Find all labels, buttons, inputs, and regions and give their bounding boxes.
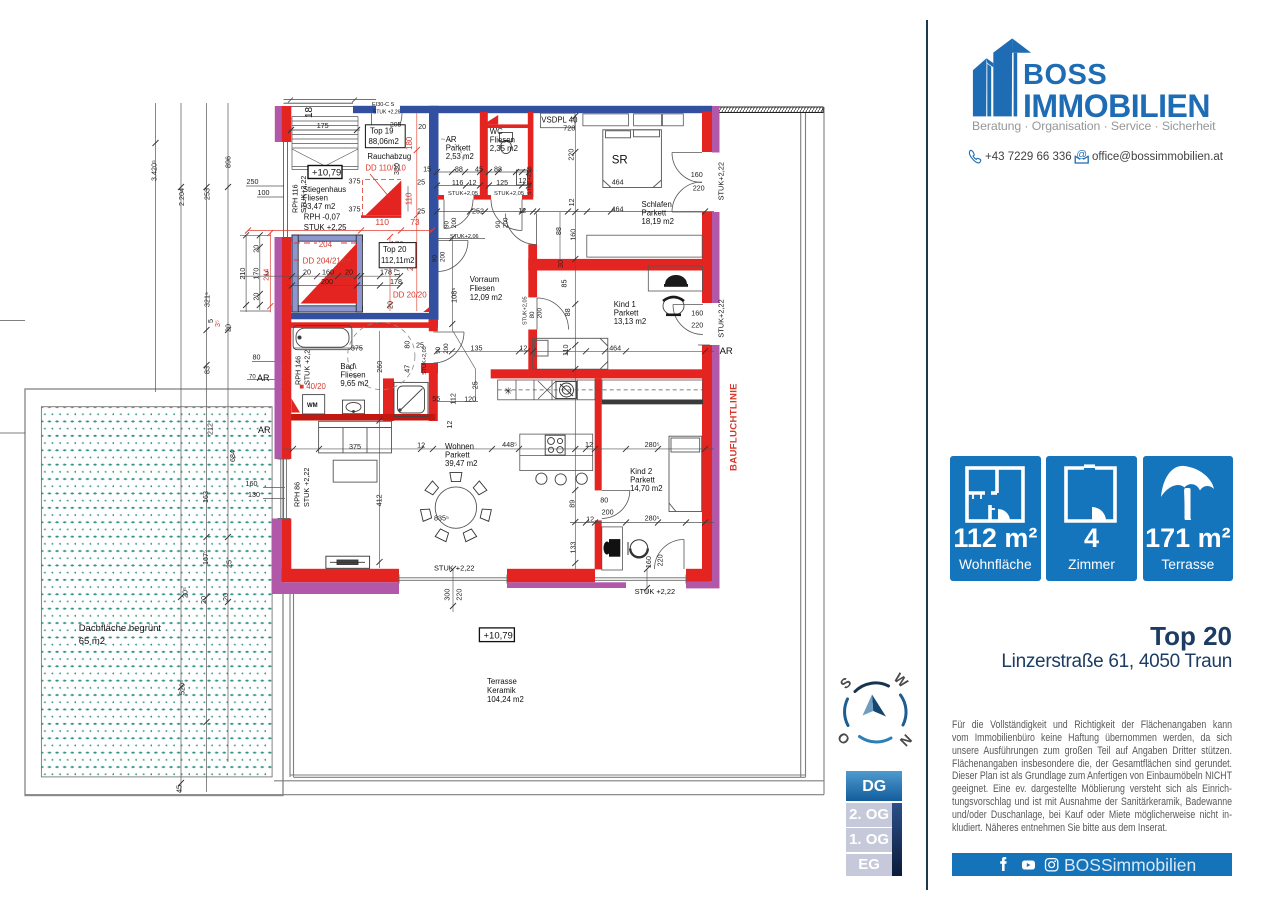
svg-text:3⁵: 3⁵ xyxy=(213,320,222,327)
svg-text:45: 45 xyxy=(475,165,483,174)
svg-text:2,35 m2: 2,35 m2 xyxy=(490,144,518,153)
svg-text:12: 12 xyxy=(567,198,576,206)
svg-text:12: 12 xyxy=(445,421,454,429)
svg-text:RPH -0,07: RPH -0,07 xyxy=(304,213,340,222)
svg-text:73: 73 xyxy=(410,217,420,227)
svg-text:+10,79: +10,79 xyxy=(312,168,341,179)
svg-text:80: 80 xyxy=(253,353,261,362)
svg-text:835⁵: 835⁵ xyxy=(434,514,449,523)
svg-text:55: 55 xyxy=(432,394,440,403)
svg-text:STUK+2,22: STUK+2,22 xyxy=(717,299,726,337)
svg-text:160: 160 xyxy=(644,556,653,568)
svg-text:20: 20 xyxy=(252,245,261,253)
svg-text:200: 200 xyxy=(602,508,614,517)
svg-text:205: 205 xyxy=(390,122,402,129)
svg-text:464: 464 xyxy=(609,344,621,353)
svg-text:S: S xyxy=(837,674,855,692)
svg-text:Vorraum: Vorraum xyxy=(470,275,499,284)
svg-text:100: 100 xyxy=(258,188,270,197)
svg-text:167⁵: 167⁵ xyxy=(201,550,210,565)
svg-text:9,65 m2: 9,65 m2 xyxy=(340,379,368,388)
svg-text:330: 330 xyxy=(392,163,401,175)
svg-text:25: 25 xyxy=(417,206,425,215)
svg-text:WM: WM xyxy=(307,403,318,409)
svg-text:252: 252 xyxy=(472,207,484,216)
svg-text:163: 163 xyxy=(201,491,210,503)
svg-text:104,24 m2: 104,24 m2 xyxy=(487,695,524,704)
svg-text:BAUFLUCHTLINIE: BAUFLUCHTLINIE xyxy=(729,383,740,471)
svg-text:88,06m2: 88,06m2 xyxy=(369,137,399,146)
svg-text:120: 120 xyxy=(464,395,476,404)
svg-text:464: 464 xyxy=(612,205,624,214)
svg-text:85: 85 xyxy=(560,280,569,288)
svg-text:110: 110 xyxy=(375,217,389,227)
svg-text:12: 12 xyxy=(417,441,425,450)
svg-text:65 m2: 65 m2 xyxy=(79,636,105,647)
svg-text:30: 30 xyxy=(556,260,565,268)
svg-text:260: 260 xyxy=(375,361,384,373)
svg-text:2.204: 2.204 xyxy=(177,188,186,206)
svg-text:STUK +2,2: STUK +2,2 xyxy=(303,350,312,385)
svg-text:375: 375 xyxy=(349,204,361,213)
svg-text:200: 200 xyxy=(503,217,510,228)
svg-text:STUK+2,05: STUK+2,05 xyxy=(494,191,524,197)
svg-text:13,13 m2: 13,13 m2 xyxy=(614,317,647,326)
svg-text:Terrasse: Terrasse xyxy=(487,677,517,686)
svg-text:AR: AR xyxy=(257,373,270,383)
svg-text:STUK +2,26: STUK +2,26 xyxy=(373,110,401,116)
svg-text:STUK+2,05: STUK+2,05 xyxy=(448,191,478,197)
svg-text:STUK+2,22: STUK+2,22 xyxy=(717,162,726,200)
svg-text:✳: ✳ xyxy=(504,387,512,398)
svg-text:12: 12 xyxy=(518,206,526,215)
svg-text:280⁵: 280⁵ xyxy=(645,514,660,523)
svg-text:W: W xyxy=(891,670,912,691)
svg-text:20: 20 xyxy=(252,293,261,301)
svg-text:204: 204 xyxy=(319,240,333,249)
svg-text:STUK+2,05: STUK+2,05 xyxy=(422,346,428,375)
svg-text:90: 90 xyxy=(495,221,502,228)
svg-text:375: 375 xyxy=(349,442,361,451)
svg-text:12: 12 xyxy=(586,515,594,524)
svg-text:464: 464 xyxy=(612,178,624,187)
svg-text:15: 15 xyxy=(423,165,431,174)
svg-text:@: @ xyxy=(1076,149,1087,161)
svg-text:Fliesen: Fliesen xyxy=(470,284,495,293)
svg-text:375: 375 xyxy=(349,176,361,185)
svg-text:Keramik: Keramik xyxy=(487,686,516,695)
svg-text:STUK +2,22: STUK +2,22 xyxy=(302,468,311,507)
svg-text:280⁵: 280⁵ xyxy=(645,440,660,449)
svg-text:20: 20 xyxy=(386,301,395,309)
svg-text:DD 20/20: DD 20/20 xyxy=(393,291,427,300)
svg-text:88: 88 xyxy=(455,165,463,174)
svg-text:200: 200 xyxy=(440,251,447,262)
svg-text:+10,79: +10,79 xyxy=(484,630,513,641)
svg-text:112,11m2: 112,11m2 xyxy=(381,256,415,265)
svg-text:178: 178 xyxy=(380,268,392,277)
svg-text:200: 200 xyxy=(451,217,458,228)
svg-text:3.420⁵: 3.420⁵ xyxy=(150,160,159,181)
svg-text:Rauchabzug: Rauchabzug xyxy=(367,152,411,161)
svg-text:Dachfläche begrünt: Dachfläche begrünt xyxy=(79,623,162,634)
svg-text:90: 90 xyxy=(435,346,442,353)
svg-text:175: 175 xyxy=(317,121,329,130)
svg-text:20: 20 xyxy=(224,324,233,332)
svg-text:220: 220 xyxy=(656,554,665,566)
svg-text:STUK+2,22: STUK+2,22 xyxy=(299,176,308,213)
svg-text:18: 18 xyxy=(304,106,315,118)
svg-text:220: 220 xyxy=(693,184,705,193)
svg-text:88: 88 xyxy=(554,227,563,235)
svg-text:STUK +2,25: STUK +2,25 xyxy=(304,223,347,232)
svg-text:300: 300 xyxy=(443,589,452,601)
svg-text:684: 684 xyxy=(228,450,237,462)
svg-text:2: 2 xyxy=(265,269,269,278)
svg-text:25: 25 xyxy=(417,177,425,186)
svg-text:220: 220 xyxy=(567,149,576,161)
svg-text:12: 12 xyxy=(519,176,527,185)
svg-text:200: 200 xyxy=(443,343,450,354)
svg-text:O: O xyxy=(834,729,853,748)
svg-text:80: 80 xyxy=(600,496,608,505)
svg-text:210: 210 xyxy=(238,268,247,280)
svg-text:20: 20 xyxy=(303,268,311,277)
svg-text:20: 20 xyxy=(345,268,353,277)
svg-text:896: 896 xyxy=(224,156,233,168)
svg-text:EI30-C S: EI30-C S xyxy=(372,102,395,108)
svg-text:135: 135 xyxy=(471,344,483,353)
svg-text:112: 112 xyxy=(449,393,458,404)
svg-text:448⁵: 448⁵ xyxy=(502,440,517,449)
svg-text:RPH 86: RPH 86 xyxy=(293,482,302,507)
svg-text:200: 200 xyxy=(537,308,544,319)
svg-text:14,70 m2: 14,70 m2 xyxy=(630,484,663,493)
svg-text:STUK+2,06: STUK+2,06 xyxy=(450,234,479,240)
svg-text:20: 20 xyxy=(221,593,230,601)
svg-text:STUK+2,05: STUK+2,05 xyxy=(527,166,533,195)
svg-text:88: 88 xyxy=(494,165,502,174)
svg-text:250: 250 xyxy=(247,177,259,186)
svg-text:45: 45 xyxy=(175,785,184,793)
svg-text:STUK +2,22: STUK +2,22 xyxy=(434,564,474,573)
svg-text:375: 375 xyxy=(351,344,363,353)
svg-text:90: 90 xyxy=(432,255,439,262)
svg-text:728: 728 xyxy=(563,124,575,133)
svg-text:90: 90 xyxy=(444,221,451,228)
svg-text:12: 12 xyxy=(585,440,593,449)
svg-text:AR: AR xyxy=(258,425,271,435)
svg-text:108⁵: 108⁵ xyxy=(450,288,459,303)
svg-text:160: 160 xyxy=(691,308,703,317)
svg-text:DD 204/214: DD 204/214 xyxy=(303,256,346,265)
svg-text:321⁵: 321⁵ xyxy=(203,292,212,307)
svg-text:80: 80 xyxy=(529,311,536,318)
svg-text:70: 70 xyxy=(249,375,256,381)
svg-text:80: 80 xyxy=(403,341,412,349)
svg-text:110: 110 xyxy=(561,345,570,356)
svg-text:88: 88 xyxy=(563,308,572,316)
svg-text:12,09 m2: 12,09 m2 xyxy=(470,293,503,302)
svg-text:160: 160 xyxy=(322,268,334,277)
svg-text:160: 160 xyxy=(691,170,703,179)
svg-text:160: 160 xyxy=(569,229,578,241)
svg-text:STUK +2,22: STUK +2,22 xyxy=(635,587,675,596)
svg-text:412: 412 xyxy=(375,494,384,506)
svg-text:2,53 m2: 2,53 m2 xyxy=(446,152,474,161)
svg-text:N: N xyxy=(897,731,915,749)
svg-text:25: 25 xyxy=(225,560,234,568)
svg-text:12: 12 xyxy=(469,178,477,187)
svg-text:220: 220 xyxy=(691,320,703,329)
svg-text:18,19 m2: 18,19 m2 xyxy=(642,217,675,226)
svg-text:130: 130 xyxy=(248,490,260,499)
svg-text:STUK+2,05: STUK+2,05 xyxy=(523,296,529,325)
svg-text:125: 125 xyxy=(496,178,508,187)
svg-text:170: 170 xyxy=(252,268,261,280)
svg-text:47: 47 xyxy=(403,365,412,373)
svg-text:Top 20: Top 20 xyxy=(383,245,407,254)
svg-text:212: 212 xyxy=(206,423,215,435)
svg-text:180: 180 xyxy=(405,136,414,150)
svg-text:110: 110 xyxy=(405,192,414,205)
svg-text:116: 116 xyxy=(452,178,463,187)
svg-text:SR: SR xyxy=(612,155,628,167)
svg-text:133: 133 xyxy=(569,542,578,554)
svg-text:12: 12 xyxy=(519,344,527,353)
svg-text:RPH 146: RPH 146 xyxy=(294,356,303,385)
svg-text:220: 220 xyxy=(455,589,464,601)
svg-text:89: 89 xyxy=(568,500,577,508)
svg-text:39,47 m2: 39,47 m2 xyxy=(445,459,478,468)
svg-text:160: 160 xyxy=(246,479,258,488)
svg-text:25: 25 xyxy=(471,381,480,389)
svg-text:200: 200 xyxy=(321,277,333,286)
svg-text:520⁵: 520⁵ xyxy=(178,680,187,695)
svg-text:20: 20 xyxy=(418,122,426,131)
svg-text:AR: AR xyxy=(720,346,733,357)
svg-text:178: 178 xyxy=(390,277,402,286)
